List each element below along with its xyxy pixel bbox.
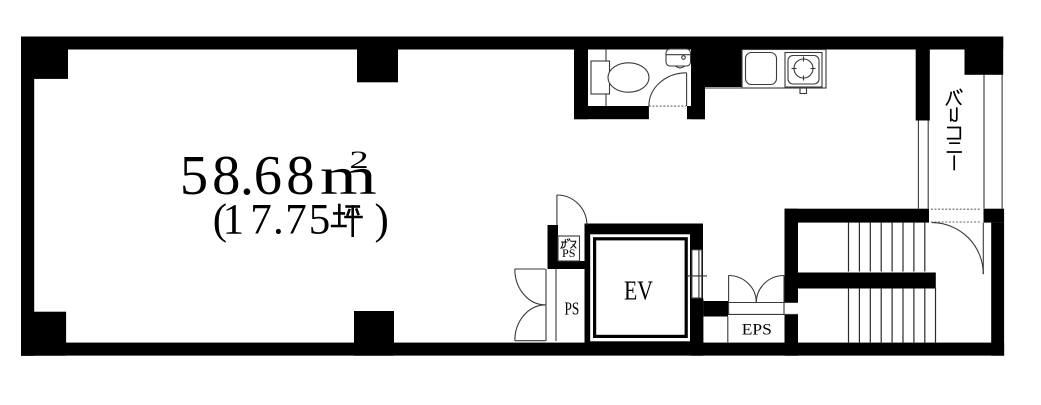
svg-text:EV: EV <box>624 276 653 306</box>
svg-text:PS: PS <box>565 299 580 319</box>
svg-text:PS: PS <box>562 248 576 260</box>
svg-text:(17.75: (17.75 <box>213 196 331 243</box>
svg-text:EPS: EPS <box>742 321 772 338</box>
svg-text:2: 2 <box>349 147 368 175</box>
svg-text:): ) <box>375 196 389 243</box>
